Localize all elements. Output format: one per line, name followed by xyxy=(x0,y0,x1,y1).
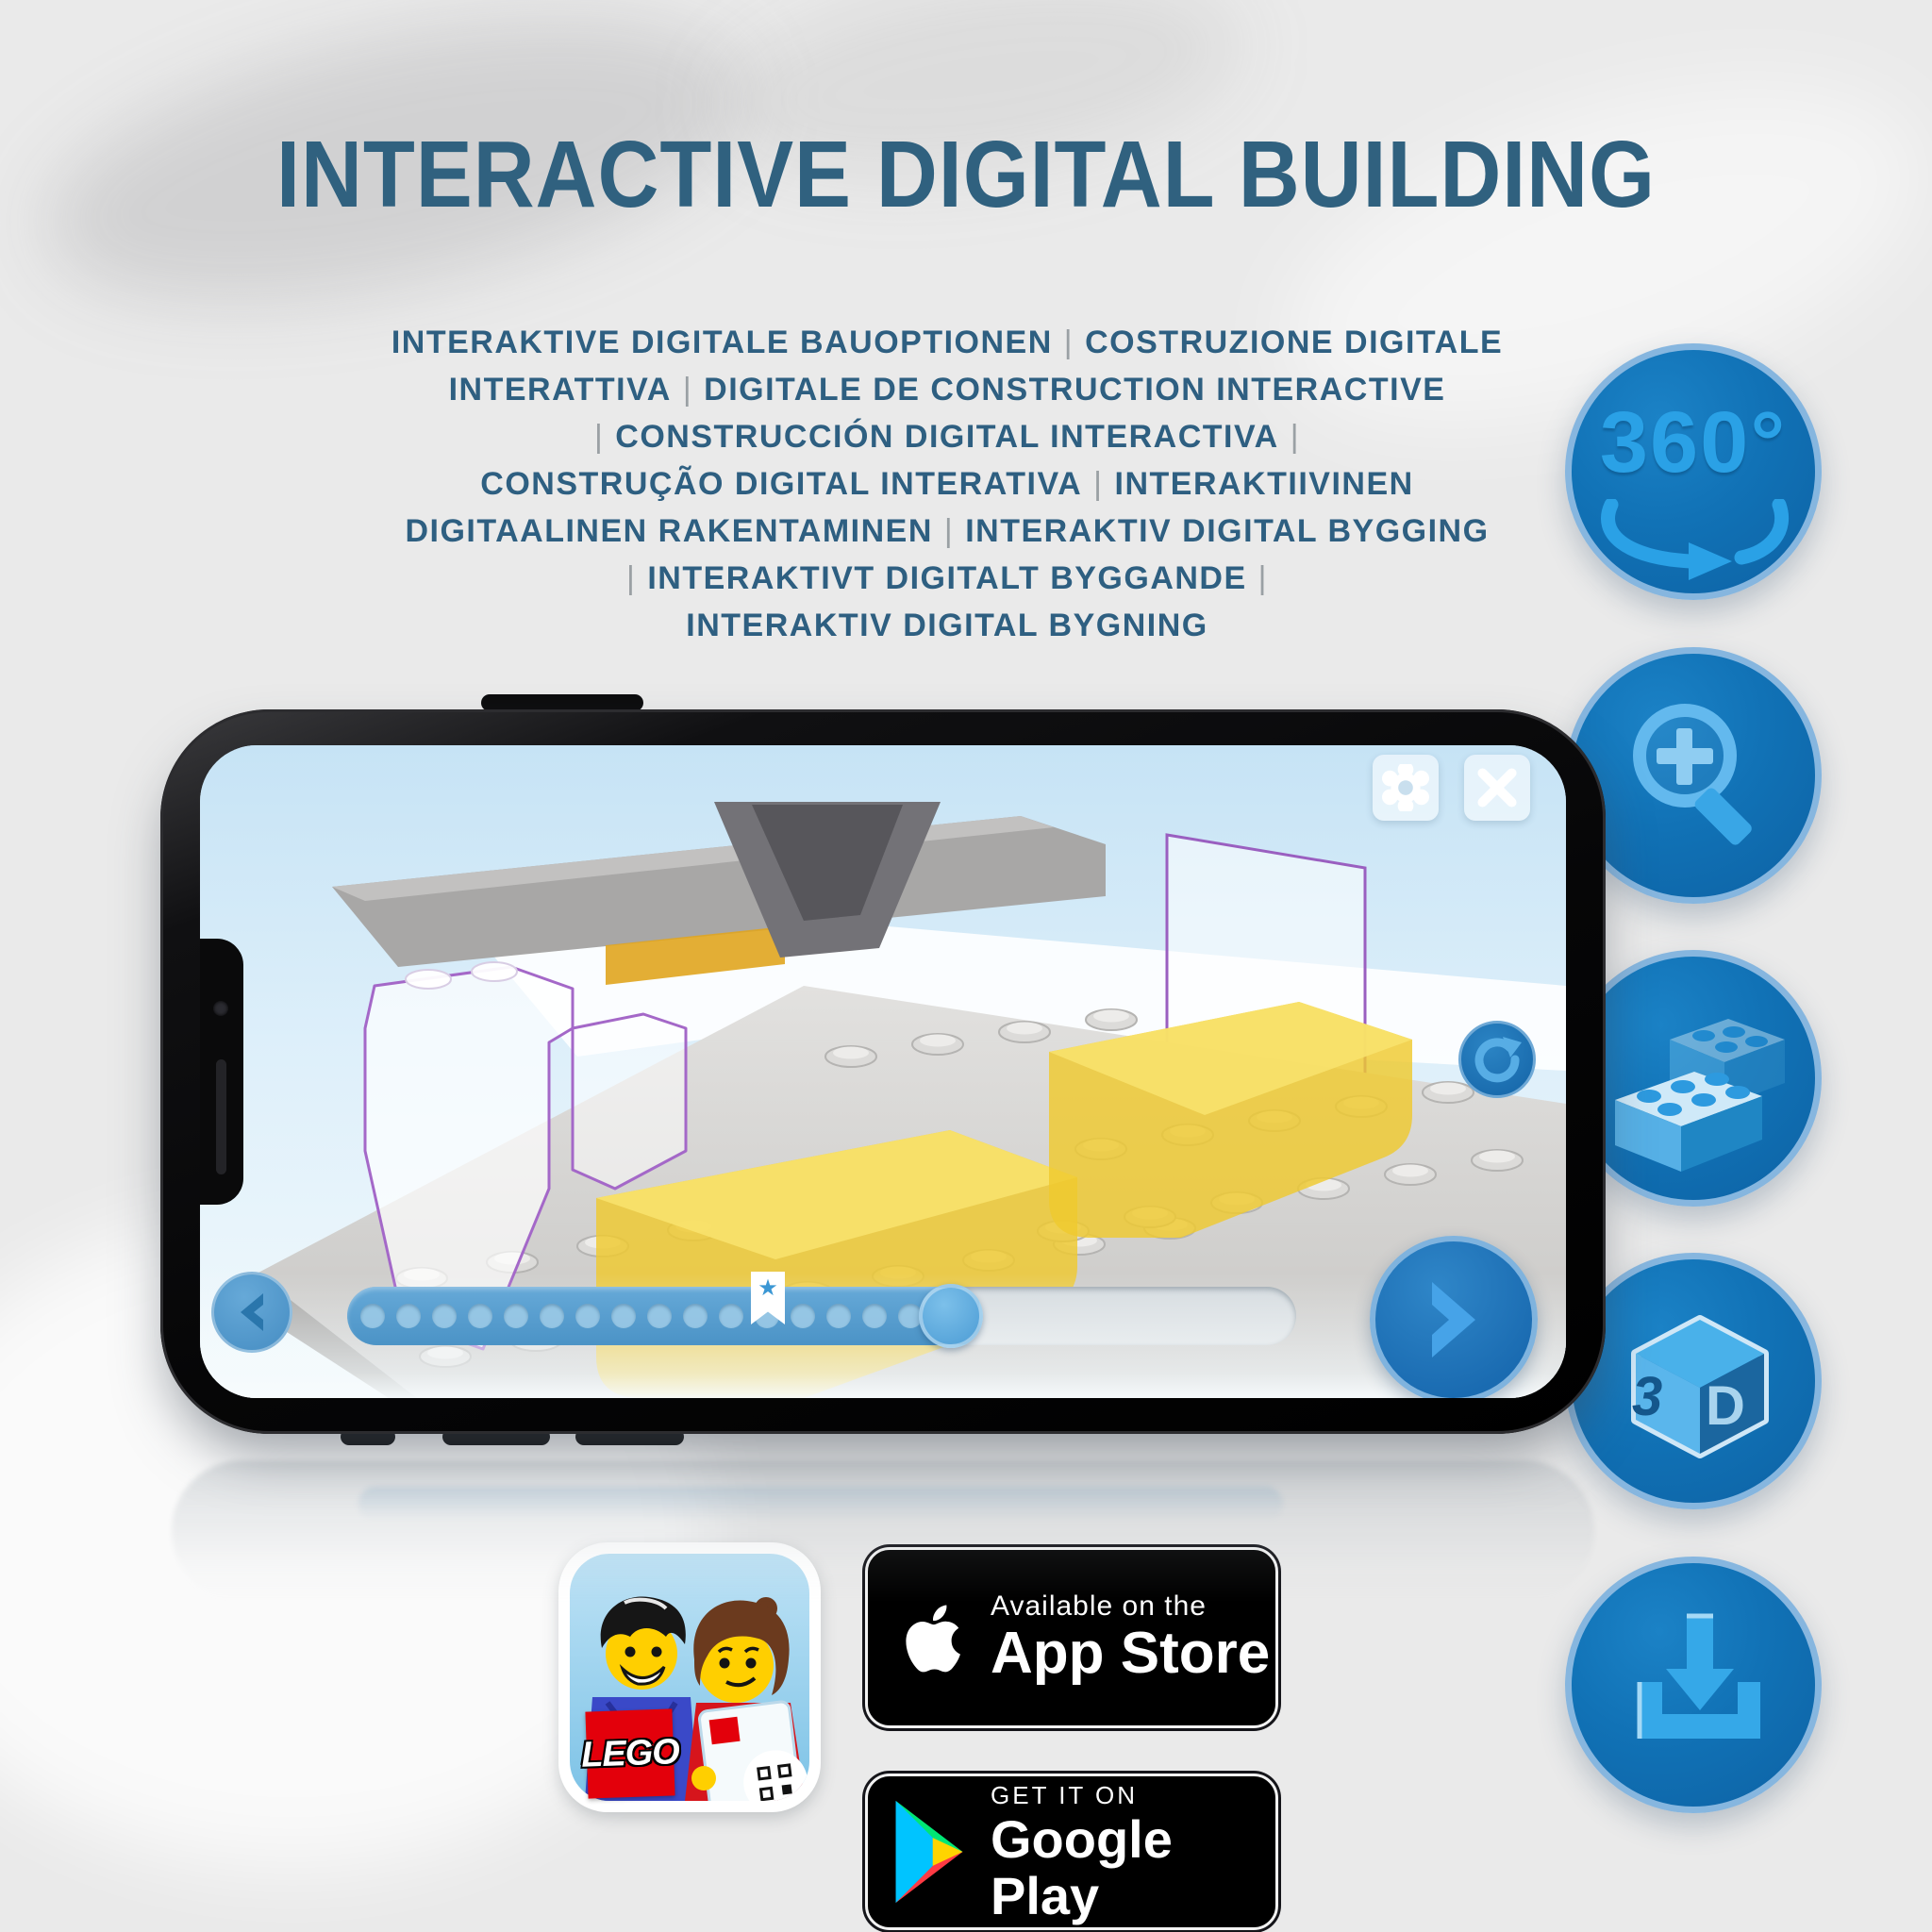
rotation-360-label: 360° xyxy=(1572,393,1815,492)
progress-dot xyxy=(826,1304,851,1328)
separator-pipe: | xyxy=(1082,466,1114,502)
progress-dot xyxy=(360,1304,385,1328)
progress-dot xyxy=(432,1304,457,1328)
slider-reflection xyxy=(358,1487,1283,1521)
separator-pipe: | xyxy=(583,419,615,455)
front-camera xyxy=(213,1001,228,1016)
google-play-name: Google Play xyxy=(991,1811,1275,1924)
progress-dot xyxy=(468,1304,492,1328)
progress-dot xyxy=(575,1304,600,1328)
download-icon xyxy=(1565,1557,1822,1813)
subtitle-line: |CONSTRUCCIÓN DIGITAL INTERACTIVA| xyxy=(174,413,1721,460)
chevron-right-icon xyxy=(1421,1276,1487,1363)
progress-dot xyxy=(540,1304,564,1328)
separator-pipe: | xyxy=(1279,419,1311,455)
marketing-page: INTERACTIVE DIGITAL BUILDING INTERAKTIVE… xyxy=(0,0,1932,1932)
separator-pipe: | xyxy=(1247,560,1279,596)
subtitle-line: INTERAKTIV DIGITAL BYGNING xyxy=(174,602,1721,649)
next-step-button[interactable] xyxy=(1370,1236,1538,1398)
earpiece-speaker xyxy=(216,1059,226,1174)
progress-dot xyxy=(504,1304,528,1328)
magnifier-glyph xyxy=(1621,695,1781,861)
google-play-tagline: GET IT ON xyxy=(991,1779,1275,1811)
app-store-text: Available on the App Store xyxy=(991,1591,1270,1685)
progress-dot xyxy=(683,1304,708,1328)
close-x-icon xyxy=(1475,766,1519,809)
subtitle-line: INTERATTIVA|DIGITALE DE CONSTRUCTION INT… xyxy=(174,366,1721,413)
cube-face-d: D xyxy=(1706,1374,1745,1438)
slider-filled-range xyxy=(347,1287,974,1345)
separator-pipe: | xyxy=(1053,325,1085,360)
phone-screen: ★ xyxy=(200,745,1566,1398)
app-store-name: App Store xyxy=(991,1623,1270,1685)
brick-glyph xyxy=(1607,994,1792,1174)
progress-dot xyxy=(719,1304,743,1328)
separator-pipe: | xyxy=(615,560,647,596)
rotate-view-button[interactable] xyxy=(1458,1021,1536,1098)
progress-dot xyxy=(862,1304,887,1328)
separator-pipe: | xyxy=(933,513,965,549)
phone-notch xyxy=(200,939,243,1205)
progress-dot xyxy=(647,1304,672,1328)
separator-pipe: | xyxy=(672,372,704,408)
progress-dot xyxy=(611,1304,636,1328)
lego-logo: LEGO xyxy=(585,1708,675,1798)
cube-face-3: 3 xyxy=(1632,1365,1662,1428)
previous-step-button[interactable] xyxy=(211,1272,292,1353)
apple-logo-icon xyxy=(868,1591,991,1684)
subtitle-line: INTERAKTIVE DIGITALE BAUOPTIONEN|COSTRUZ… xyxy=(174,319,1721,366)
rotate-arrow-icon xyxy=(1473,1035,1522,1084)
slider-thumb[interactable] xyxy=(919,1284,983,1348)
gear-icon xyxy=(1382,764,1429,811)
build-progress-slider[interactable]: ★ xyxy=(347,1287,1296,1345)
subtitle-multilanguage: INTERAKTIVE DIGITALE BAUOPTIONEN|COSTRUZ… xyxy=(174,319,1721,649)
progress-dot xyxy=(396,1304,421,1328)
page-title: INTERACTIVE DIGITAL BUILDING xyxy=(96,121,1835,229)
subtitle-line: CONSTRUÇÃO DIGITAL INTERATIVA|INTERAKTII… xyxy=(174,460,1721,508)
chevron-left-icon xyxy=(235,1290,269,1335)
subtitle-line: DIGITAALINEN RAKENTAMINEN|INTERAKTIV DIG… xyxy=(174,508,1721,555)
download-glyph xyxy=(1624,1608,1775,1763)
rotation-360-icon: 360° xyxy=(1565,343,1822,600)
google-play-badge[interactable]: GET IT ON Google Play xyxy=(865,1774,1278,1930)
close-button[interactable] xyxy=(1464,755,1530,821)
smartphone: ★ xyxy=(160,709,1606,1434)
subtitle-line: |INTERAKTIVT DIGITALT BYGGANDE| xyxy=(174,555,1721,602)
google-play-text: GET IT ON Google Play xyxy=(991,1779,1275,1924)
lego-logo-text: LEGO xyxy=(580,1732,679,1776)
settings-gear-button[interactable] xyxy=(1373,755,1439,821)
phone-reflection xyxy=(172,1460,1594,1602)
google-play-triangle-icon xyxy=(868,1799,991,1905)
rotation-arrow xyxy=(1598,499,1790,580)
progress-dot xyxy=(791,1304,815,1328)
